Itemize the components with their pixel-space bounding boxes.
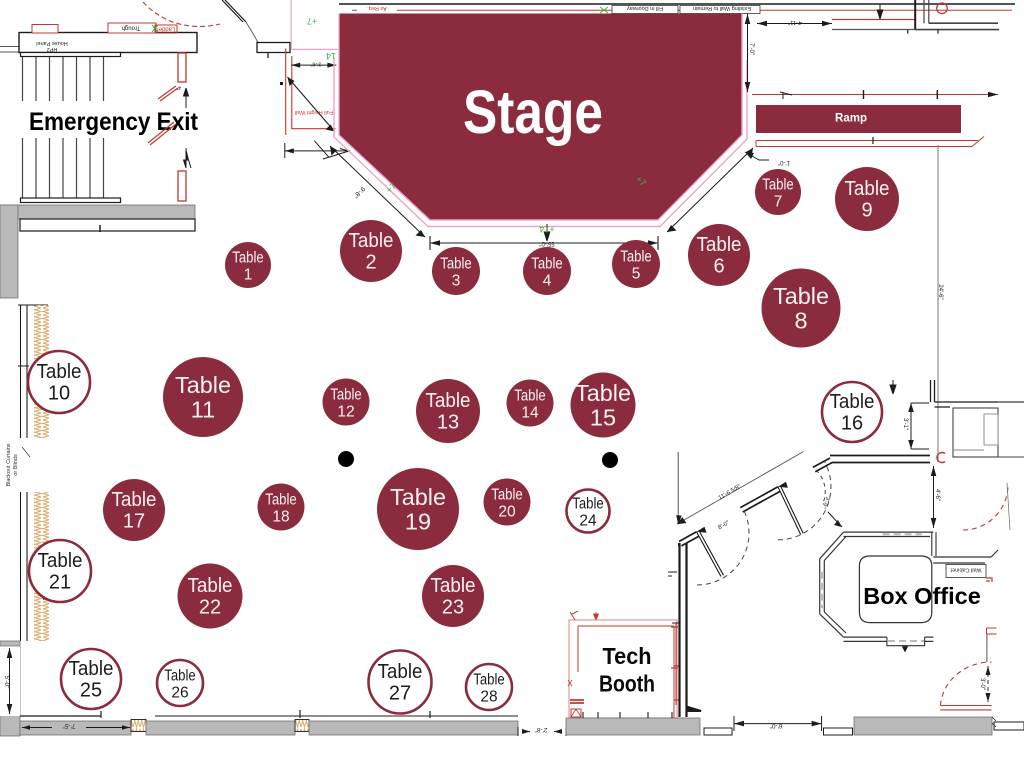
svg-text:20: 20 xyxy=(498,504,516,521)
svg-text:As Req.: As Req. xyxy=(367,5,387,11)
svg-text:Table: Table xyxy=(426,390,471,412)
svg-text:Blackout Curtains: Blackout Curtains xyxy=(6,443,12,486)
svg-text:Table: Table xyxy=(514,388,546,405)
svg-text:4'-11": 4'-11" xyxy=(788,19,802,25)
svg-text:House Panel: House Panel xyxy=(36,40,68,46)
svg-text:9: 9 xyxy=(861,200,872,222)
svg-text:11: 11 xyxy=(191,397,215,423)
svg-text:18: 18 xyxy=(272,509,289,526)
svg-text:Table: Table xyxy=(762,177,794,194)
svg-text:Table: Table xyxy=(830,391,875,413)
svg-text:Table: Table xyxy=(349,230,394,252)
svg-text:Table: Table xyxy=(845,178,890,200)
svg-text:12: 12 xyxy=(337,404,354,421)
svg-text:Table: Table xyxy=(69,658,114,680)
svg-text:Wall Cabinet: Wall Cabinet xyxy=(950,567,981,573)
svg-text:Table: Table xyxy=(390,484,446,510)
svg-text:22: 22 xyxy=(199,597,221,619)
svg-text:Table: Table xyxy=(38,550,83,572)
svg-text:7: 7 xyxy=(774,194,783,211)
svg-text:+14: +14 xyxy=(539,224,554,234)
svg-text:Table: Table xyxy=(265,492,297,509)
svg-text:Table: Table xyxy=(575,380,631,406)
svg-text:17: 17 xyxy=(123,511,145,533)
svg-text:Table: Table xyxy=(473,672,505,689)
svg-text:5: 5 xyxy=(632,266,641,283)
svg-text:or Blinds: or Blinds xyxy=(13,454,19,476)
svg-text:27: 27 xyxy=(389,683,411,705)
svg-text:4'-6": 4'-6" xyxy=(934,489,940,501)
svg-text:7'-0": 7'-0" xyxy=(748,43,754,55)
svg-text:Ladder: Ladder xyxy=(157,26,176,32)
svg-text:8: 8 xyxy=(794,308,807,334)
svg-text:26: 26 xyxy=(171,685,188,702)
svg-text:6: 6 xyxy=(713,256,724,278)
svg-text:15: 15 xyxy=(590,405,616,431)
svg-text:10: 10 xyxy=(48,383,70,405)
svg-text:3'-0": 3'-0" xyxy=(979,678,985,690)
svg-text:1'-0": 1'-0" xyxy=(778,159,790,165)
svg-text:21: 21 xyxy=(49,572,71,594)
svg-text:Ramp: Ramp xyxy=(835,113,867,125)
svg-text:Table: Table xyxy=(572,496,604,513)
svg-text:Table: Table xyxy=(431,575,476,597)
svg-text:Table: Table xyxy=(164,668,196,685)
svg-text:14: 14 xyxy=(521,405,539,422)
svg-text:Table: Table xyxy=(378,661,423,683)
svg-text:6'-0": 6'-0" xyxy=(769,722,783,729)
svg-text:Full Height Wall: Full Height Wall xyxy=(295,109,333,115)
svg-text:25: 25 xyxy=(80,680,102,702)
svg-text:Table: Table xyxy=(112,489,157,511)
svg-text:Box Office: Box Office xyxy=(863,583,981,609)
svg-text:Trough: Trough xyxy=(122,25,141,31)
svg-text:28: 28 xyxy=(480,689,497,706)
svg-text:5'-0": 5'-0" xyxy=(3,676,10,690)
svg-text:19: 19 xyxy=(405,509,431,535)
svg-text:Booth: Booth xyxy=(599,671,655,697)
svg-text:55'-0": 55'-0" xyxy=(539,240,554,246)
svg-text:4": 4" xyxy=(176,84,181,90)
svg-text:14: 14 xyxy=(326,51,336,61)
svg-text:Table: Table xyxy=(188,575,233,597)
svg-text:Table: Table xyxy=(37,361,82,383)
svg-text:3'-1": 3'-1" xyxy=(902,418,908,430)
svg-text:3'-6": 3'-6" xyxy=(310,61,321,67)
svg-text:Table: Table xyxy=(330,387,362,404)
svg-text:16: 16 xyxy=(841,413,863,435)
svg-text:4: 4 xyxy=(543,273,552,290)
svg-text:Tech: Tech xyxy=(603,643,652,669)
svg-text:Table: Table xyxy=(773,283,829,309)
svg-text:24'-6": 24'-6" xyxy=(937,284,943,299)
svg-text:Table: Table xyxy=(175,372,231,398)
svg-text:Table: Table xyxy=(697,234,742,256)
svg-text:Table: Table xyxy=(440,256,472,273)
svg-text:Table: Table xyxy=(232,250,264,267)
svg-text:1: 1 xyxy=(244,267,253,284)
svg-text:Fill in Doorway: Fill in Doorway xyxy=(627,5,663,11)
svg-text:23: 23 xyxy=(442,597,464,619)
svg-text:Table: Table xyxy=(491,487,523,504)
svg-text:+7: +7 xyxy=(307,16,317,26)
svg-text:2: 2 xyxy=(365,252,376,274)
svg-text:Existing Wall to Remain: Existing Wall to Remain xyxy=(693,5,751,11)
svg-text:2'-8": 2'-8" xyxy=(534,726,548,733)
svg-text:13: 13 xyxy=(437,412,459,434)
svg-text:7'-5": 7'-5" xyxy=(62,722,76,729)
svg-text:24: 24 xyxy=(579,513,597,530)
svg-text:Stage: Stage xyxy=(463,78,603,146)
svg-text:3: 3 xyxy=(452,273,461,290)
svg-text:Table: Table xyxy=(620,249,652,266)
svg-text:HP2: HP2 xyxy=(47,46,58,52)
svg-text:Table: Table xyxy=(531,256,563,273)
